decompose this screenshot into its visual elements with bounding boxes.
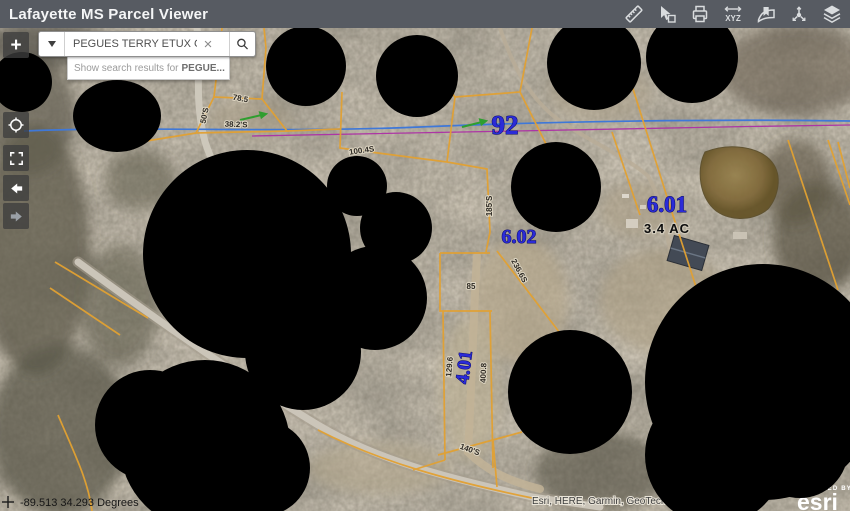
previous-extent-button[interactable] — [3, 175, 29, 201]
chevron-down-icon — [48, 41, 56, 47]
measure-icon[interactable] — [617, 0, 650, 28]
search-source-dropdown[interactable] — [39, 32, 65, 56]
svg-text:4.01: 4.01 — [452, 350, 477, 386]
pond — [700, 147, 778, 219]
arrow-left-icon — [8, 180, 25, 197]
search-bar: × — [38, 31, 256, 57]
parcel-viewer-window: 78.5 50'S 38.2'S 100.4S 185'S 85 236.6S … — [0, 0, 850, 511]
locate-icon — [7, 116, 25, 134]
print-icon[interactable] — [683, 0, 716, 28]
acreage-label: 3.4 AC — [644, 221, 690, 236]
svg-text:185'S: 185'S — [485, 195, 494, 216]
svg-text:85: 85 — [467, 282, 476, 291]
svg-text:6.02: 6.02 — [502, 226, 537, 248]
coordinates-readout: -89.513 34.293 Degrees — [20, 497, 139, 509]
select-icon[interactable] — [650, 0, 683, 28]
svg-text:6.01: 6.01 — [647, 192, 687, 217]
full-extent-button[interactable] — [3, 145, 29, 171]
arrow-right-icon — [8, 208, 25, 225]
svg-text:400.8: 400.8 — [479, 362, 489, 383]
coordinate-widget: -89.513 34.293 Degrees — [2, 496, 139, 509]
layers-icon[interactable] — [815, 0, 848, 28]
clear-search-button[interactable]: × — [197, 37, 219, 52]
suggestion-prefix: Show search results for — [74, 63, 179, 74]
svg-text:92: 92 — [492, 110, 519, 140]
svg-text:XYZ: XYZ — [725, 14, 741, 23]
app-header: Lafayette MS Parcel Viewer — [0, 0, 850, 28]
search-button[interactable] — [229, 32, 255, 56]
suggestion-term: PEGUE... — [182, 63, 225, 74]
share-icon[interactable] — [782, 0, 815, 28]
zoom-in-button[interactable]: + — [3, 32, 29, 58]
search-box: × — [65, 32, 229, 56]
search-icon — [236, 35, 249, 53]
my-location-button[interactable] — [3, 112, 29, 138]
app-title: Lafayette MS Parcel Viewer — [0, 6, 208, 23]
next-extent-button[interactable] — [3, 203, 29, 229]
bookmark-icon[interactable] — [749, 0, 782, 28]
search-suggestion[interactable]: Show search results for PEGUE... — [67, 57, 230, 80]
search-input[interactable] — [65, 38, 197, 50]
xyz-coordinates-icon[interactable]: XYZ — [716, 0, 749, 28]
toolbar: XYZ — [617, 0, 848, 28]
svg-text:38.2'S: 38.2'S — [225, 120, 249, 130]
extent-icon — [8, 150, 25, 167]
